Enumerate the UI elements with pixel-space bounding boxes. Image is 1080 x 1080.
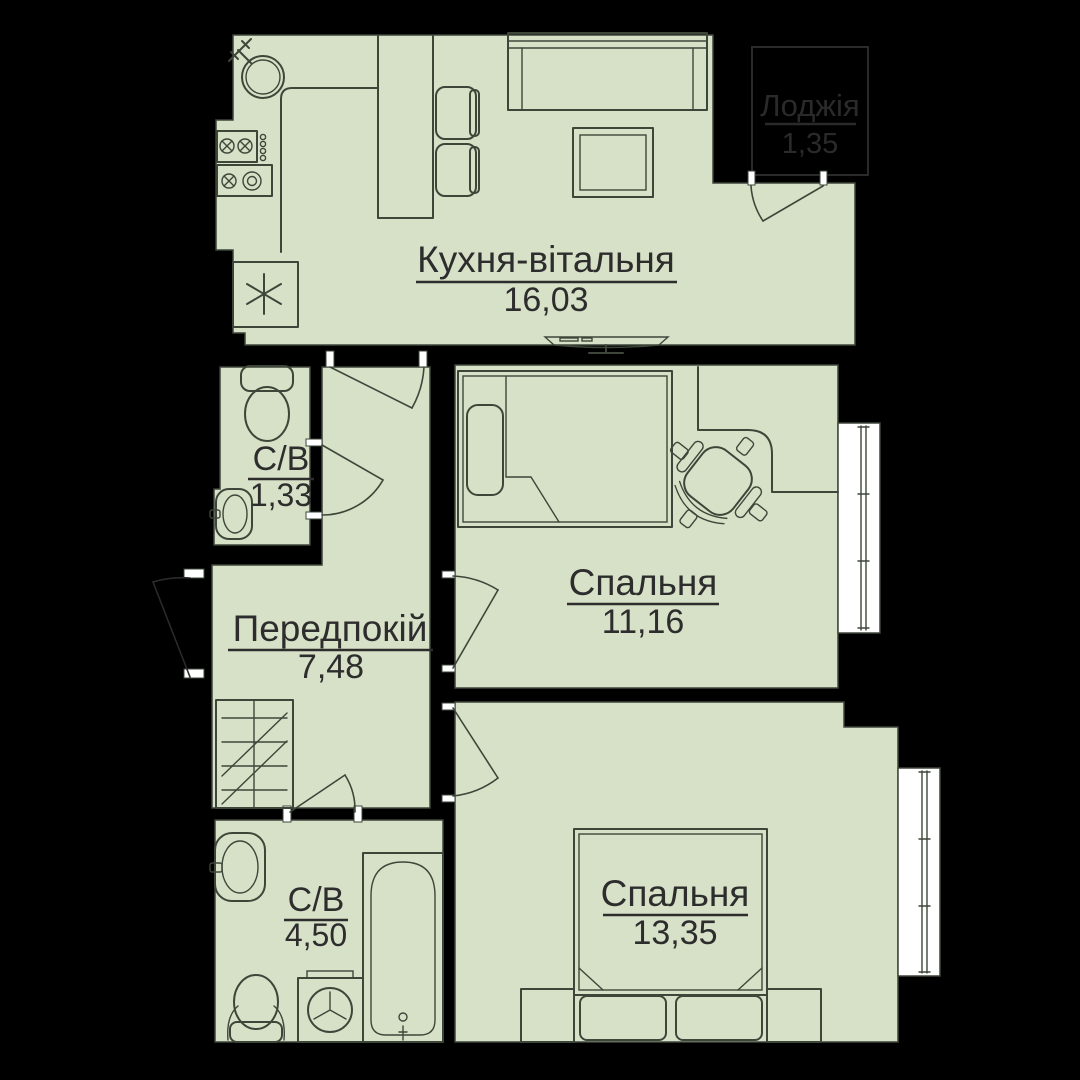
bedroom-2-window: [898, 768, 940, 976]
door-jamb: [326, 351, 334, 367]
room-label: С/В: [253, 440, 310, 478]
room-label: Передпокій: [233, 608, 428, 649]
room-label: Кухня-вітальня: [417, 239, 675, 280]
room-area: 7,48: [298, 648, 364, 686]
room-area: 13,35: [632, 914, 717, 952]
room-area: 1,35: [782, 128, 838, 160]
label-bathroom-top: С/В 1,33: [248, 440, 314, 513]
door-jamb: [820, 171, 827, 185]
room-label: Спальня: [601, 873, 750, 914]
floor-plan: Кухня-вітальня 16,03 С/В 1,33 Передпокій…: [0, 0, 1080, 1080]
label-bathroom-main: С/В 4,50: [284, 881, 348, 953]
bedroom-1-window: [838, 423, 880, 633]
door-jamb: [748, 171, 755, 185]
door-jamb: [419, 351, 427, 367]
door-jamb: [184, 569, 204, 578]
door-jamb: [306, 512, 322, 519]
room-area: 1,33: [250, 477, 312, 513]
door-jamb: [442, 571, 455, 578]
room-area: 16,03: [503, 281, 588, 319]
room-area: 11,16: [602, 603, 685, 641]
room-label: Лоджія: [760, 88, 859, 123]
room-label: С/В: [288, 881, 345, 919]
room-label: Спальня: [569, 562, 718, 603]
room-area: 4,50: [285, 917, 347, 953]
